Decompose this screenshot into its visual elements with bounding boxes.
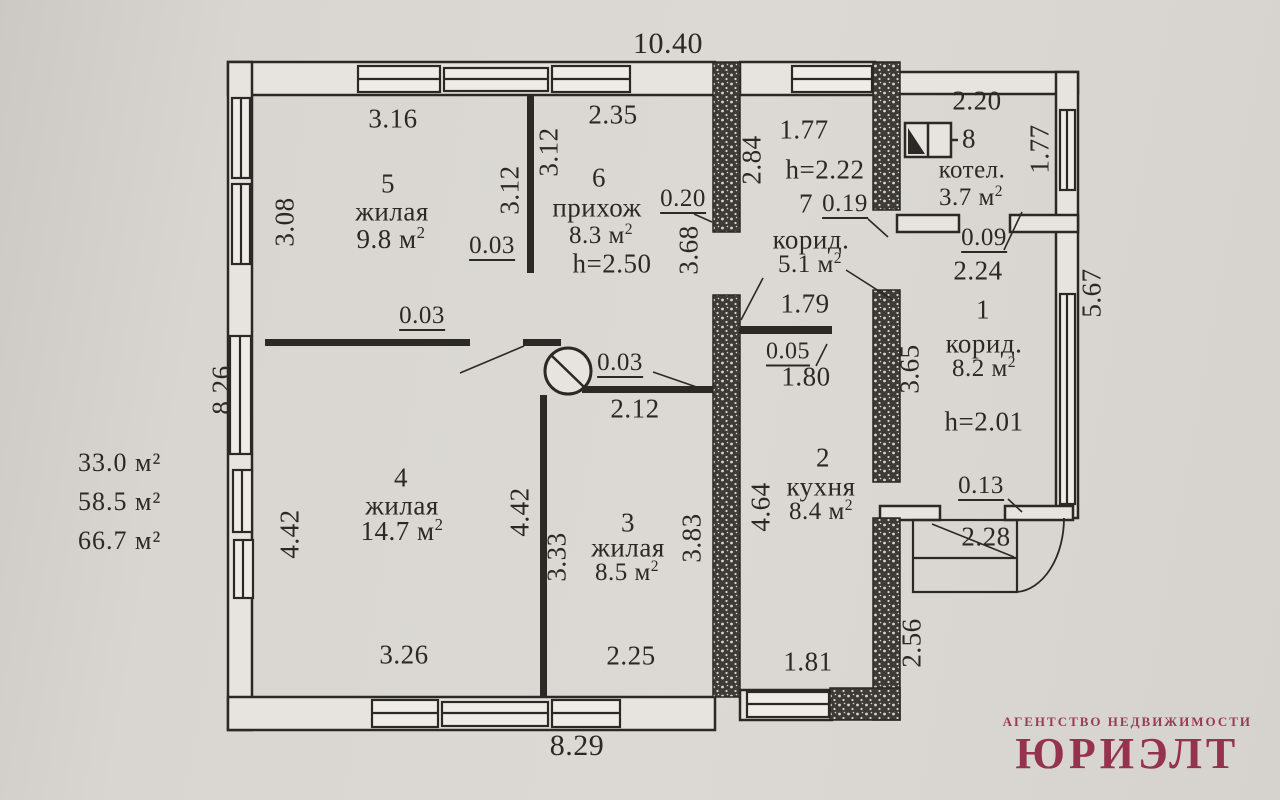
total-living-area: 33.0 м² [78, 448, 161, 478]
dim-label: 5.67 [1079, 268, 1106, 317]
dim-label: 3.12 [497, 165, 524, 214]
dim-label: 8.26 [209, 365, 236, 414]
room-6-number: 6 [592, 165, 606, 192]
partitions [265, 95, 832, 697]
room-8-number: 8 [962, 126, 976, 153]
dim-label: 0.03 [399, 303, 445, 331]
dim-label: 3.16 [368, 106, 417, 133]
dim-label: 8.29 [550, 731, 605, 761]
dim-label: 3.26 [379, 642, 428, 669]
dim-label: 2.35 [588, 102, 637, 129]
dim-label: 3.08 [272, 197, 299, 246]
room-7-number: 7 [799, 191, 813, 218]
room-5-number: 5 [381, 171, 395, 198]
dim-label: 4.42 [507, 487, 534, 536]
room-2-number: 2 [816, 445, 830, 472]
room-8-name: котел. [939, 158, 1006, 183]
room-1-height: h=2.01 [945, 409, 1024, 436]
room-4-area: 14.7 м2 [361, 517, 444, 545]
dim-label: 3.33 [544, 532, 571, 581]
dim-label: 2.56 [899, 618, 926, 667]
dim-label: 2.84 [739, 135, 766, 184]
dim-label: 1.77 [779, 117, 828, 144]
floor-plan: 10.408.298.265.672.563.163.085жилая9.8 м… [0, 0, 1280, 800]
room-7-area: 5.1 м2 [778, 251, 842, 277]
dim-label: 0.13 [958, 473, 1004, 501]
agency-logo-name: ЮРИЭЛТ [1003, 728, 1252, 779]
stove-icon [545, 348, 591, 394]
dim-label: 1.81 [783, 649, 832, 676]
dim-label: 1.77 [1027, 124, 1054, 173]
dim-label: 2.24 [953, 258, 1002, 285]
room-2-area: 8.4 м2 [789, 498, 853, 524]
room-6-name: прихож [552, 195, 641, 222]
dim-label: 2.12 [610, 396, 659, 423]
room-1-area: 8.2 м2 [952, 355, 1016, 381]
room-1-number: 1 [976, 297, 990, 324]
room-7-height: h=2.22 [786, 157, 865, 184]
dim-label: 1.80 [781, 364, 830, 391]
dim-label: 4.64 [748, 482, 775, 531]
dim-label: 4.42 [277, 509, 304, 558]
dim-label: 2.28 [961, 524, 1010, 551]
dim-label: 10.40 [633, 29, 703, 59]
room-3-area: 8.5 м2 [595, 559, 659, 585]
dim-label: 0.19 [822, 191, 868, 219]
boiler-icon [905, 123, 958, 157]
door-swing-arc [1017, 518, 1064, 592]
dim-label: 3.83 [679, 513, 706, 562]
room-5-name: жилая [355, 199, 428, 226]
room-8-area: 3.7 м2 [939, 184, 1003, 210]
dim-label: 2.20 [952, 88, 1001, 115]
total-overall-area: 66.7 м² [78, 526, 161, 556]
room-6-area: 8.3 м2 [569, 222, 633, 248]
dim-label: 0.20 [660, 186, 706, 214]
total-usable-area: 58.5 м² [78, 487, 161, 517]
room-5-area: 9.8 м2 [357, 225, 426, 253]
dim-label: 3.65 [897, 344, 924, 393]
dim-label: 0.03 [597, 350, 643, 378]
area-totals: 33.0 м² 58.5 м² 66.7 м² [78, 448, 161, 565]
dim-label: 1.79 [780, 291, 829, 318]
room-4-number: 4 [394, 465, 408, 492]
agency-logo: АГЕНТСТВО НЕДВИЖИМОСТИ ЮРИЭЛТ [1003, 714, 1252, 779]
room-6-height: h=2.50 [573, 251, 652, 278]
dim-label: 0.09 [961, 225, 1007, 253]
dim-label: 0.03 [469, 233, 515, 261]
dim-label: 2.25 [606, 643, 655, 670]
dim-label: 3.12 [536, 127, 563, 176]
dim-label: 3.68 [676, 225, 703, 274]
